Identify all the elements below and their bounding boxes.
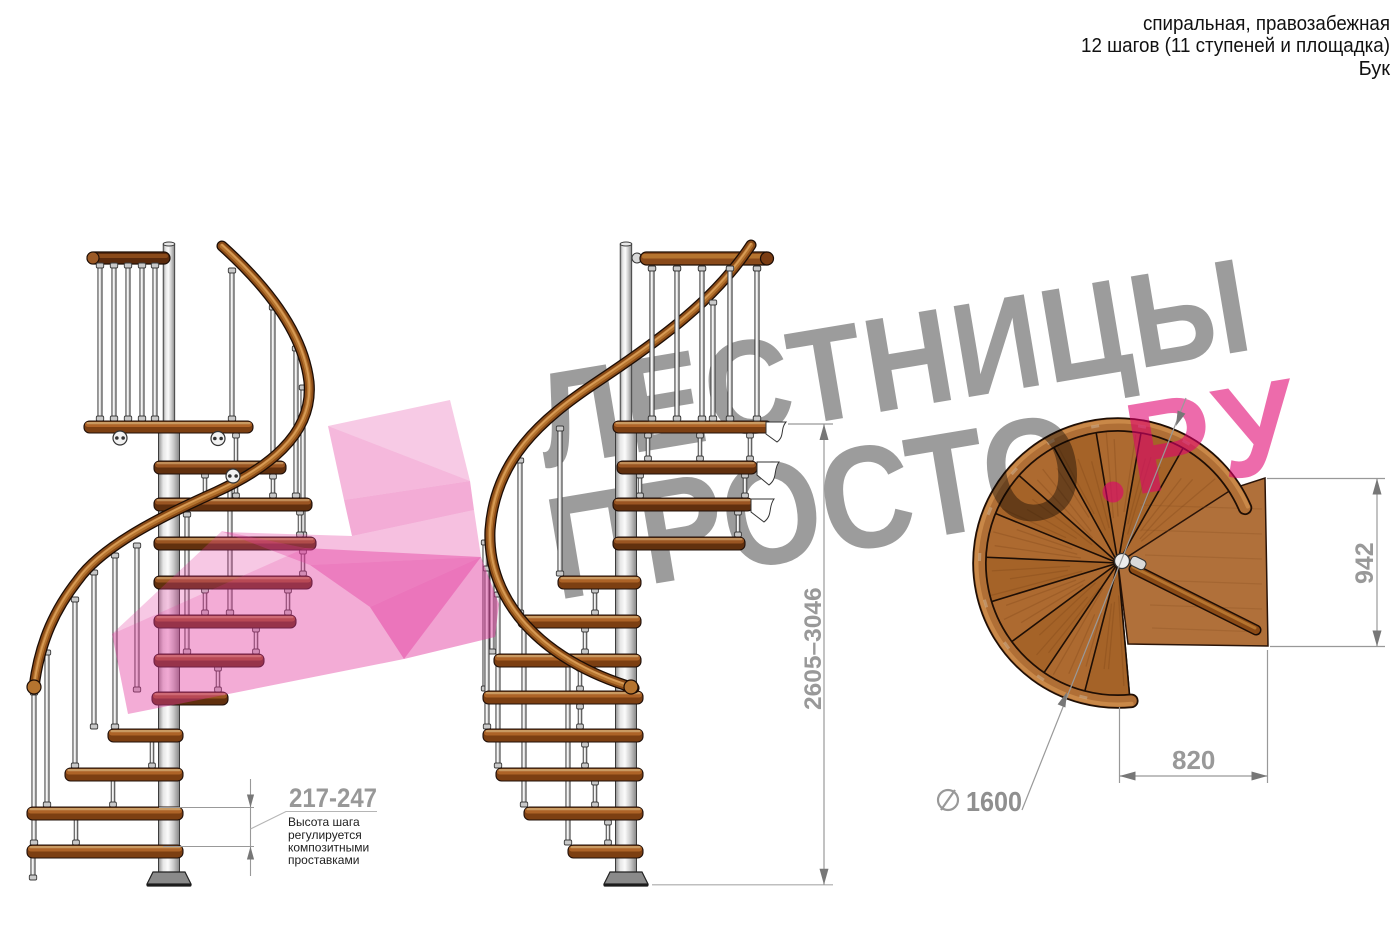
svg-text:2605–3046: 2605–3046	[800, 587, 827, 710]
svg-text:Высота шага: Высота шага	[288, 815, 360, 829]
svg-text:820: 820	[1172, 745, 1215, 775]
svg-text:942: 942	[1351, 542, 1379, 584]
svg-text:спиральная, правозабежная: спиральная, правозабежная	[1143, 13, 1390, 35]
svg-text:Бук: Бук	[1359, 58, 1391, 80]
svg-text:1600: 1600	[966, 786, 1022, 817]
svg-text:217-247: 217-247	[289, 783, 377, 813]
svg-text:РУ: РУ	[1115, 349, 1315, 522]
svg-text:проставками: проставками	[288, 853, 359, 867]
svg-text:12 шагов (11 ступеней и площад: 12 шагов (11 ступеней и площадка)	[1081, 35, 1390, 57]
